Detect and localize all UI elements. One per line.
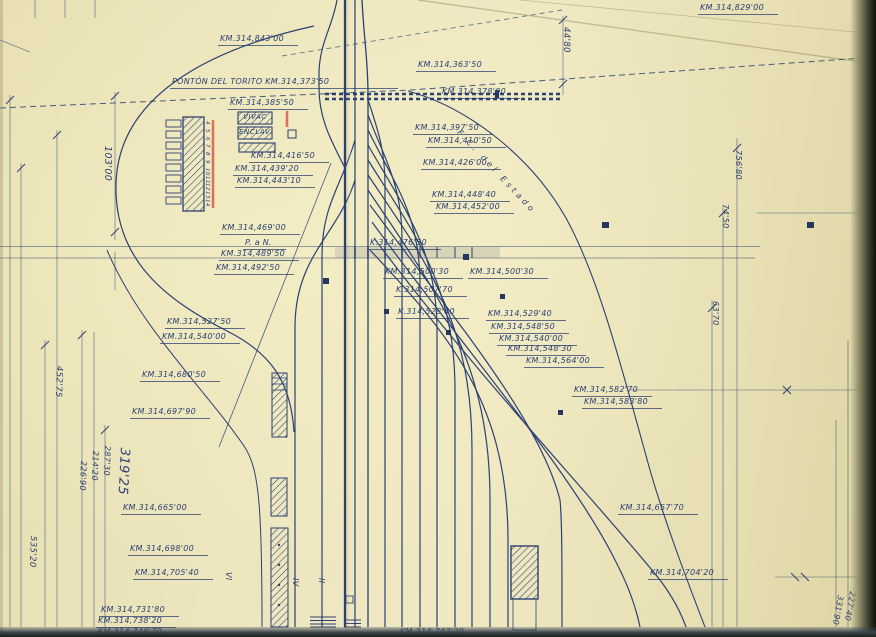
dimension-label: 44'80 <box>562 27 571 53</box>
dimension-label: 74'50 <box>721 204 729 229</box>
km-label: KM.314,529'40 <box>486 310 566 321</box>
dimension-label: 226'90 <box>78 461 87 491</box>
km-label: KM.314,500'30 <box>383 268 463 279</box>
km-label: KM.314,564'00 <box>524 357 604 368</box>
km-label: KM.314,410'50 <box>426 137 506 148</box>
km-label: KM.314,416'50 <box>249 152 329 163</box>
km-label: KM.314,698'00 <box>128 545 208 556</box>
km-label: KM.314,657'70 <box>618 504 698 515</box>
paper-crease <box>346 0 351 637</box>
km-label: PONTÓN DEL TORITO KM.314,373'50 <box>170 78 398 89</box>
dimension-label: 319'25 <box>116 447 131 495</box>
vivac-building-label: VIVAC <box>240 114 270 121</box>
km-label: KM.314,548'30 <box>506 345 586 356</box>
dimension-label: 214'20 <box>90 451 99 481</box>
km-label: K.314,528'40 <box>396 308 469 319</box>
km-label: KM.314,448'40 <box>430 191 510 202</box>
km-label: KM.314,582'70 <box>572 386 652 397</box>
km-label: KM.314,492'50 <box>214 264 294 275</box>
dimension-label: 452'75 <box>53 366 63 398</box>
km-label: KM.314,439'20 <box>233 165 313 176</box>
door-number: 4 <box>204 121 210 125</box>
km-label: KM.314,397'50 <box>413 124 493 135</box>
km-label: KM.314,540'00 <box>160 333 240 344</box>
km-label: KM.314,843'00 <box>218 35 298 46</box>
enclav-building-label: ENCLAV. <box>239 129 271 136</box>
km-label: KM.314,469'00 <box>220 224 300 235</box>
km-label: K.314,476'50 <box>368 239 441 250</box>
dimension-label: 331'90 <box>831 595 844 626</box>
km-label: KM.314,500'30 <box>468 268 548 279</box>
km-label: KM.314,705'40 <box>133 569 213 580</box>
km-label: KM.314,489'50 <box>219 250 299 261</box>
track-number: VI <box>224 572 232 581</box>
labels-layer: VIVAC ENCLAV. F.C. del Estado KM.314,829… <box>0 0 876 637</box>
km-label: KM.314,378'00 <box>440 88 520 99</box>
km-label: KM.314,548'50 <box>489 323 569 334</box>
scan-edge-right <box>850 0 876 637</box>
door-number: 5 <box>204 129 210 133</box>
scan-edge-bottom <box>0 627 876 637</box>
km-label: KM.314,527'50 <box>165 318 245 329</box>
dimension-label: 287'30 <box>102 446 111 476</box>
door-number: 7 <box>204 144 210 148</box>
scanned-track-plan-sheet: VIVAC ENCLAV. F.C. del Estado KM.314,829… <box>0 0 876 637</box>
km-label: KM.314,385'50 <box>228 99 308 110</box>
km-label: KM.314,704'20 <box>648 569 728 580</box>
door-number: 8 <box>204 152 210 156</box>
track-number: II <box>317 578 325 584</box>
km-label: K.314,507'70 <box>394 286 467 297</box>
dimension-label: 535'20 <box>27 536 37 568</box>
dimension-label: 103'00 <box>103 146 113 181</box>
track-number: IV <box>291 578 299 587</box>
scan-edge-left <box>0 0 3 637</box>
km-label: KM.314,665'00 <box>121 504 201 515</box>
door-number: 6 <box>204 137 210 141</box>
door-number: 13 <box>204 191 210 199</box>
km-label: KM.314,697'90 <box>130 408 210 419</box>
km-label: KM.314,452'00 <box>434 203 514 214</box>
km-label: KM.314,426'00 <box>421 159 501 170</box>
dimension-label: 756'80 <box>734 150 742 180</box>
km-label: KM.314,363'50 <box>416 61 496 72</box>
km-label: KM.314,829'00 <box>698 4 778 15</box>
door-number: 10 <box>204 168 210 176</box>
km-label: KM.314,443'10 <box>235 177 315 188</box>
km-label: KM.314,680'50 <box>140 371 220 382</box>
door-number: 9 <box>204 160 210 164</box>
door-number: 14 <box>204 199 210 207</box>
dimension-label: 63'70 <box>711 301 719 326</box>
km-label: KM.314,583'80 <box>582 398 662 409</box>
